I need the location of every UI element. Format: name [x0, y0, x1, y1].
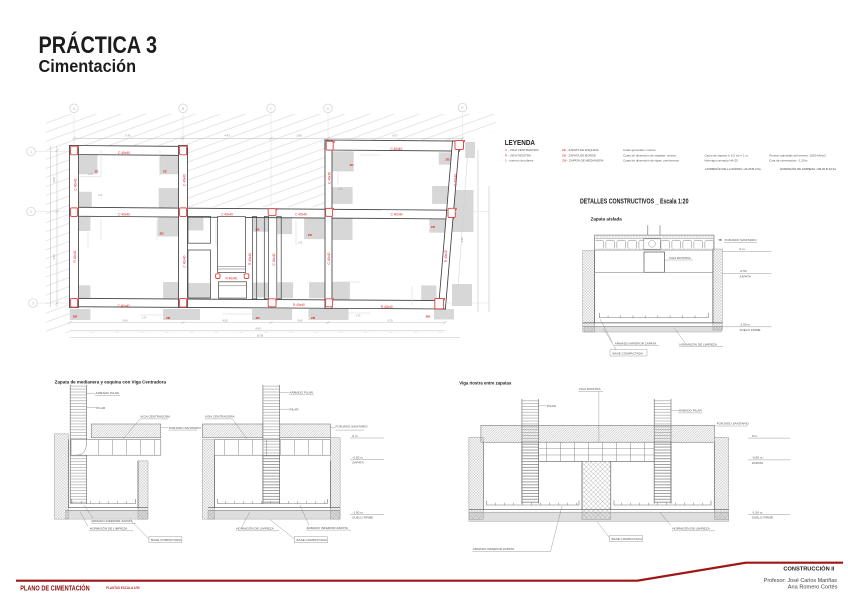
svg-text:4.43: 4.43: [224, 134, 230, 138]
svg-text:HORMIGÓN DE LIMPIEZA: HORMIGÓN DE LIMPIEZA: [680, 341, 718, 346]
svg-text:VIGA CENTRADORA: VIGA CENTRADORA: [205, 415, 236, 419]
svg-text:4.50: 4.50: [222, 318, 228, 322]
svg-text:ARMADO INFERIOR ZAPATA: ARMADO INFERIOR ZAPATA: [615, 341, 657, 345]
svg-text:C 40x40: C 40x40: [118, 304, 130, 308]
svg-text:BASE COMPACTADA: BASE COMPACTADA: [297, 538, 328, 542]
svg-text:Zapata aislada: Zapata aislada: [591, 217, 623, 222]
svg-text:ARMADO PILAR: ARMADO PILAR: [290, 391, 314, 395]
svg-text:C 40x40: C 40x40: [390, 147, 402, 151]
svg-text:HORMIGÓN DE LIMPIEZA: HORMIGÓN DE LIMPIEZA: [672, 526, 710, 531]
svg-text:R 40x40: R 40x40: [73, 250, 77, 262]
svg-text:C - VIGA CENTRADORA: C - VIGA CENTRADORA: [505, 148, 539, 152]
svg-text:C 40x40: C 40x40: [453, 174, 457, 186]
svg-text:1: 1: [30, 150, 32, 154]
svg-text:Cotas de dimensión de vigas: c: Cotas de dimensión de vigas: centímetros: [623, 159, 679, 163]
svg-text:CONSTRUCCIÓN II: CONSTRUCCIÓN II: [783, 565, 834, 573]
svg-text:Hormigón armado HA-25: Hormigón armado HA-25: [705, 159, 739, 163]
svg-text:E: E: [461, 106, 464, 110]
svg-text:PILAR: PILAR: [290, 407, 300, 411]
svg-text:VIGA RIOSTRA: VIGA RIOSTRA: [579, 387, 602, 391]
svg-text:PLANO DE CIMENTACIÓN: PLANO DE CIMENTACIÓN: [20, 583, 90, 592]
svg-text:BASE COMPACTADA: BASE COMPACTADA: [151, 538, 182, 542]
svg-text:1.40: 1.40: [356, 316, 361, 318]
svg-text:HORMIGÓN DE LIMPIEZA: HORMIGÓN DE LIMPIEZA: [236, 526, 274, 531]
svg-text:-0.50 m.: -0.50 m.: [752, 456, 763, 460]
svg-text:0 m.: 0 m.: [740, 247, 746, 251]
svg-text:C 40x40: C 40x40: [327, 252, 331, 264]
svg-text:D: D: [327, 107, 330, 111]
svg-text:2: 2: [30, 210, 32, 214]
svg-text:C 40x40: C 40x40: [182, 255, 186, 267]
svg-text:Ana Romero Cortés: Ana Romero Cortés: [788, 584, 838, 590]
svg-text:ARMADO PILAR: ARMADO PILAR: [96, 391, 120, 395]
svg-text:VIGA CENTRADORA: VIGA CENTRADORA: [140, 415, 171, 419]
svg-text:HORMIGÓN DE LA ZAPATA: HA 25 B: HORMIGÓN DE LA ZAPATA: HA 25 B 2 IIa: [705, 166, 761, 171]
svg-text:ARMADO INFERIOR ZAPATA: ARMADO INFERIOR ZAPATA: [473, 547, 515, 551]
svg-text:1.40: 1.40: [142, 318, 147, 320]
svg-text:ZAPATA: ZAPATA: [752, 461, 764, 465]
svg-text:16.95: 16.95: [257, 333, 264, 337]
svg-text:A: A: [73, 107, 76, 111]
svg-text:4.30: 4.30: [52, 254, 56, 260]
svg-text:HORMIGÓN DE LIMPIEZA: HORMIGÓN DE LIMPIEZA: [90, 526, 128, 531]
svg-text:C 40x40: C 40x40: [295, 212, 307, 216]
svg-text:ZE - ZAPATA DE ESQUINA: ZE - ZAPATA DE ESQUINA: [562, 148, 599, 152]
svg-text:R 40x40: R 40x40: [248, 253, 252, 265]
svg-text:C 40x40: C 40x40: [328, 172, 332, 184]
svg-text:PLANTAS ESCALA 1/50: PLANTAS ESCALA 1/50: [106, 586, 140, 590]
svg-text:Tensión admisible del terreno:: Tensión admisible del terreno: 2000 kN/m…: [769, 153, 826, 157]
svg-text:C 40x40: C 40x40: [391, 212, 403, 216]
svg-text:ARMADO INFERIOR ZAPATA: ARMADO INFERIOR ZAPATA: [306, 526, 348, 530]
svg-text:PRÁCTICA 3: PRÁCTICA 3: [39, 31, 158, 59]
svg-text:Viga riostra entre zapatas: Viga riostra entre zapatas: [459, 380, 512, 385]
svg-text:ZB - ZAPATA DE BORDE: ZB - ZAPATA DE BORDE: [562, 153, 596, 157]
svg-text:0 m.: 0 m.: [752, 434, 758, 438]
svg-text:SUELO FIRME: SUELO FIRME: [752, 516, 773, 520]
svg-text:LEYENDA: LEYENDA: [505, 138, 535, 147]
svg-text:R 40x40: R 40x40: [444, 250, 448, 262]
svg-text:ZE: ZE: [163, 170, 167, 174]
svg-text:ZE: ZE: [350, 163, 354, 167]
svg-text:-0.50 m.: -0.50 m.: [352, 456, 363, 460]
svg-text:ZM - ZAPATA DE MEDIANERA: ZM - ZAPATA DE MEDIANERA: [562, 159, 604, 163]
svg-text:FORJADO SANITARIO: FORJADO SANITARIO: [725, 238, 758, 242]
svg-text:VIGA RIOSTRA: VIGA RIOSTRA: [669, 256, 692, 260]
svg-text:3: 3: [32, 302, 34, 306]
svg-text:B: B: [182, 107, 185, 111]
svg-text:C 40x40: C 40x40: [118, 151, 130, 155]
svg-text:FORJADO SANITARIO: FORJADO SANITARIO: [336, 425, 369, 429]
svg-text:R 40x40: R 40x40: [225, 276, 237, 280]
svg-text:C 40x40: C 40x40: [74, 178, 78, 190]
svg-text:Cimentación: Cimentación: [39, 56, 137, 76]
svg-text:1 - número de pilares: 1 - número de pilares: [505, 159, 534, 163]
svg-text:ZAPATA: ZAPATA: [352, 461, 364, 465]
svg-text:6.67: 6.67: [392, 134, 398, 138]
svg-text:Cotas generales: metros: Cotas generales: metros: [623, 148, 656, 152]
svg-text:C: C: [270, 107, 273, 111]
svg-text:-1.50 m.: -1.50 m.: [352, 510, 363, 514]
svg-text:Zapata de medianera y esquina: Zapata de medianera y esquina con Viga C…: [55, 380, 167, 385]
svg-text:4.30: 4.30: [460, 237, 464, 243]
svg-text:1.40: 1.40: [338, 189, 343, 191]
svg-text:PILAR: PILAR: [547, 404, 557, 408]
svg-text:C 40x40: C 40x40: [183, 174, 187, 186]
svg-text:Profesor: José Carlos Mariñas: Profesor: José Carlos Mariñas: [764, 578, 838, 584]
svg-text:ZE: ZE: [95, 169, 99, 173]
svg-text:2.88: 2.88: [296, 134, 302, 138]
svg-text:ARMADO PILAR: ARMADO PILAR: [678, 409, 702, 413]
svg-text:FORJADO SANITARIO: FORJADO SANITARIO: [717, 422, 750, 426]
svg-text:C 40x40: C 40x40: [272, 253, 276, 265]
svg-text:-1.50 m.: -1.50 m.: [740, 323, 751, 327]
svg-text:ZM: ZM: [73, 315, 78, 319]
svg-text:0 m.: 0 m.: [352, 434, 358, 438]
svg-text:5.40: 5.40: [125, 134, 131, 138]
svg-text:5.45: 5.45: [297, 318, 303, 322]
svg-text:1.40: 1.40: [298, 243, 303, 245]
svg-text:ZAPATA: ZAPATA: [740, 274, 752, 278]
svg-text:R - VIGA RIOSTRA: R - VIGA RIOSTRA: [505, 153, 531, 157]
svg-text:8.45: 8.45: [255, 327, 261, 331]
svg-text:5.40: 5.40: [122, 318, 128, 322]
svg-text:3.08: 3.08: [52, 177, 56, 183]
svg-text:1.40: 1.40: [88, 174, 93, 176]
svg-text:SUELO FIRME: SUELO FIRME: [740, 328, 761, 332]
svg-text:6.70: 6.70: [387, 318, 393, 322]
svg-text:BASE COMPACTADA: BASE COMPACTADA: [612, 537, 643, 541]
svg-text:1.40: 1.40: [98, 195, 103, 197]
svg-text:R 40x40: R 40x40: [293, 303, 305, 307]
svg-text:C 40x40: C 40x40: [221, 212, 233, 216]
svg-text:Canto de zapata: h 1/2 vlo =: Canto de zapata: h 1/2 vlo = 1 m.: [705, 153, 749, 157]
svg-text:HORMIGÓN DE LIMPIEZA: HM 20 B: HORMIGÓN DE LIMPIEZA: HM 20 B 10 IIa: [780, 166, 836, 171]
svg-text:FORJADO SANITARIO: FORJADO SANITARIO: [169, 426, 202, 430]
svg-text:DETALLES CONSTRUCTIVOS _ Escal: DETALLES CONSTRUCTIVOS _ Escala 1:20: [580, 196, 689, 205]
svg-text:R 40x40: R 40x40: [381, 305, 393, 309]
svg-text:PILAR: PILAR: [96, 406, 106, 410]
svg-text:SUELO FIRME: SUELO FIRME: [352, 516, 373, 520]
svg-text:Cotas de dimensión de zapatas:: Cotas de dimensión de zapatas: metros: [623, 153, 676, 157]
svg-text:BASE COMPACTADA: BASE COMPACTADA: [613, 351, 644, 355]
svg-text:ZM: ZM: [426, 315, 431, 319]
svg-text:-0.50: -0.50: [740, 269, 747, 273]
svg-text:C 40x40: C 40x40: [118, 212, 130, 216]
svg-text:ARMADO INFERIOR ZAPATA: ARMADO INFERIOR ZAPATA: [91, 519, 133, 523]
svg-text:Cota de cimentación: -1.20m: Cota de cimentación: -1.20m: [769, 159, 808, 163]
svg-text:-1.50 m.: -1.50 m.: [752, 511, 763, 515]
